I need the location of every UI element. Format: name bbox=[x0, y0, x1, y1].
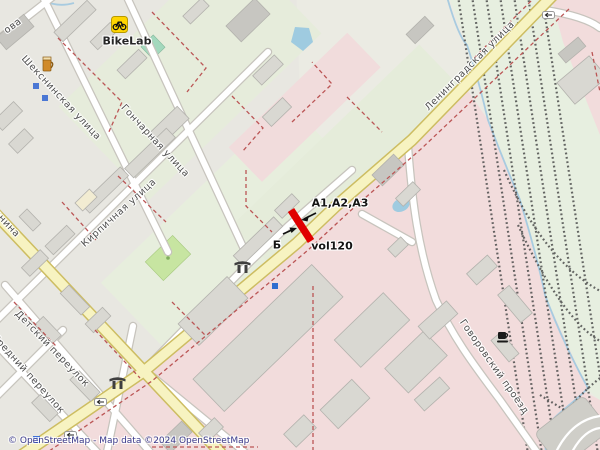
shop-marker bbox=[33, 83, 39, 89]
map-attribution[interactable]: © OpenStreetMap - Map data ©2024 OpenStr… bbox=[8, 436, 249, 446]
map-viewport[interactable]: ова Шекснинская улица Гончарная улица Ки… bbox=[0, 0, 600, 450]
shop-marker bbox=[272, 283, 278, 289]
map-graphics bbox=[0, 0, 600, 450]
shop-marker bbox=[42, 95, 48, 101]
